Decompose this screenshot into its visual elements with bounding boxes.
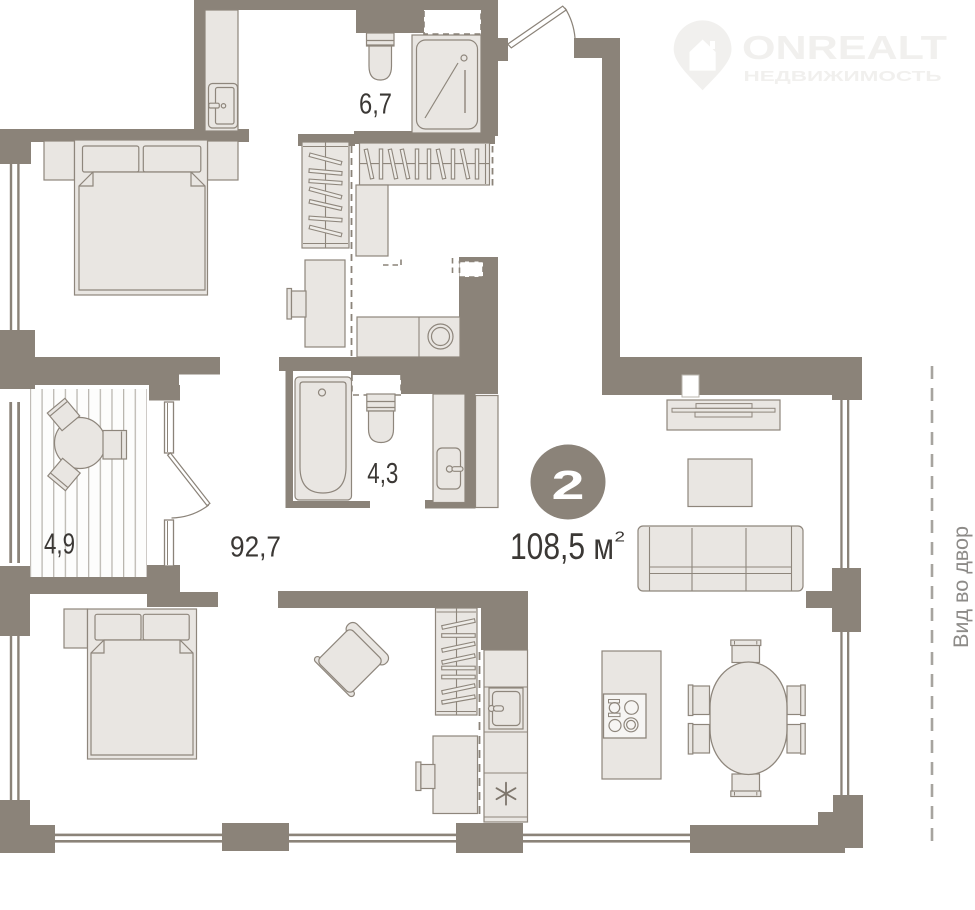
svg-text:Вид во двор: Вид во двор bbox=[950, 526, 973, 648]
svg-text:ONREALT: ONREALT bbox=[742, 29, 947, 66]
svg-text:2: 2 bbox=[552, 462, 585, 508]
svg-text:4,3: 4,3 bbox=[367, 458, 398, 490]
svg-text:4,9: 4,9 bbox=[44, 529, 75, 561]
svg-text:2: 2 bbox=[615, 529, 626, 546]
svg-text:92,7: 92,7 bbox=[230, 532, 281, 564]
svg-text:108,5 м: 108,5 м bbox=[510, 525, 614, 567]
svg-text:6,7: 6,7 bbox=[359, 89, 392, 121]
svg-text:НЕДВИЖИМОСТЬ: НЕДВИЖИМОСТЬ bbox=[744, 68, 942, 85]
